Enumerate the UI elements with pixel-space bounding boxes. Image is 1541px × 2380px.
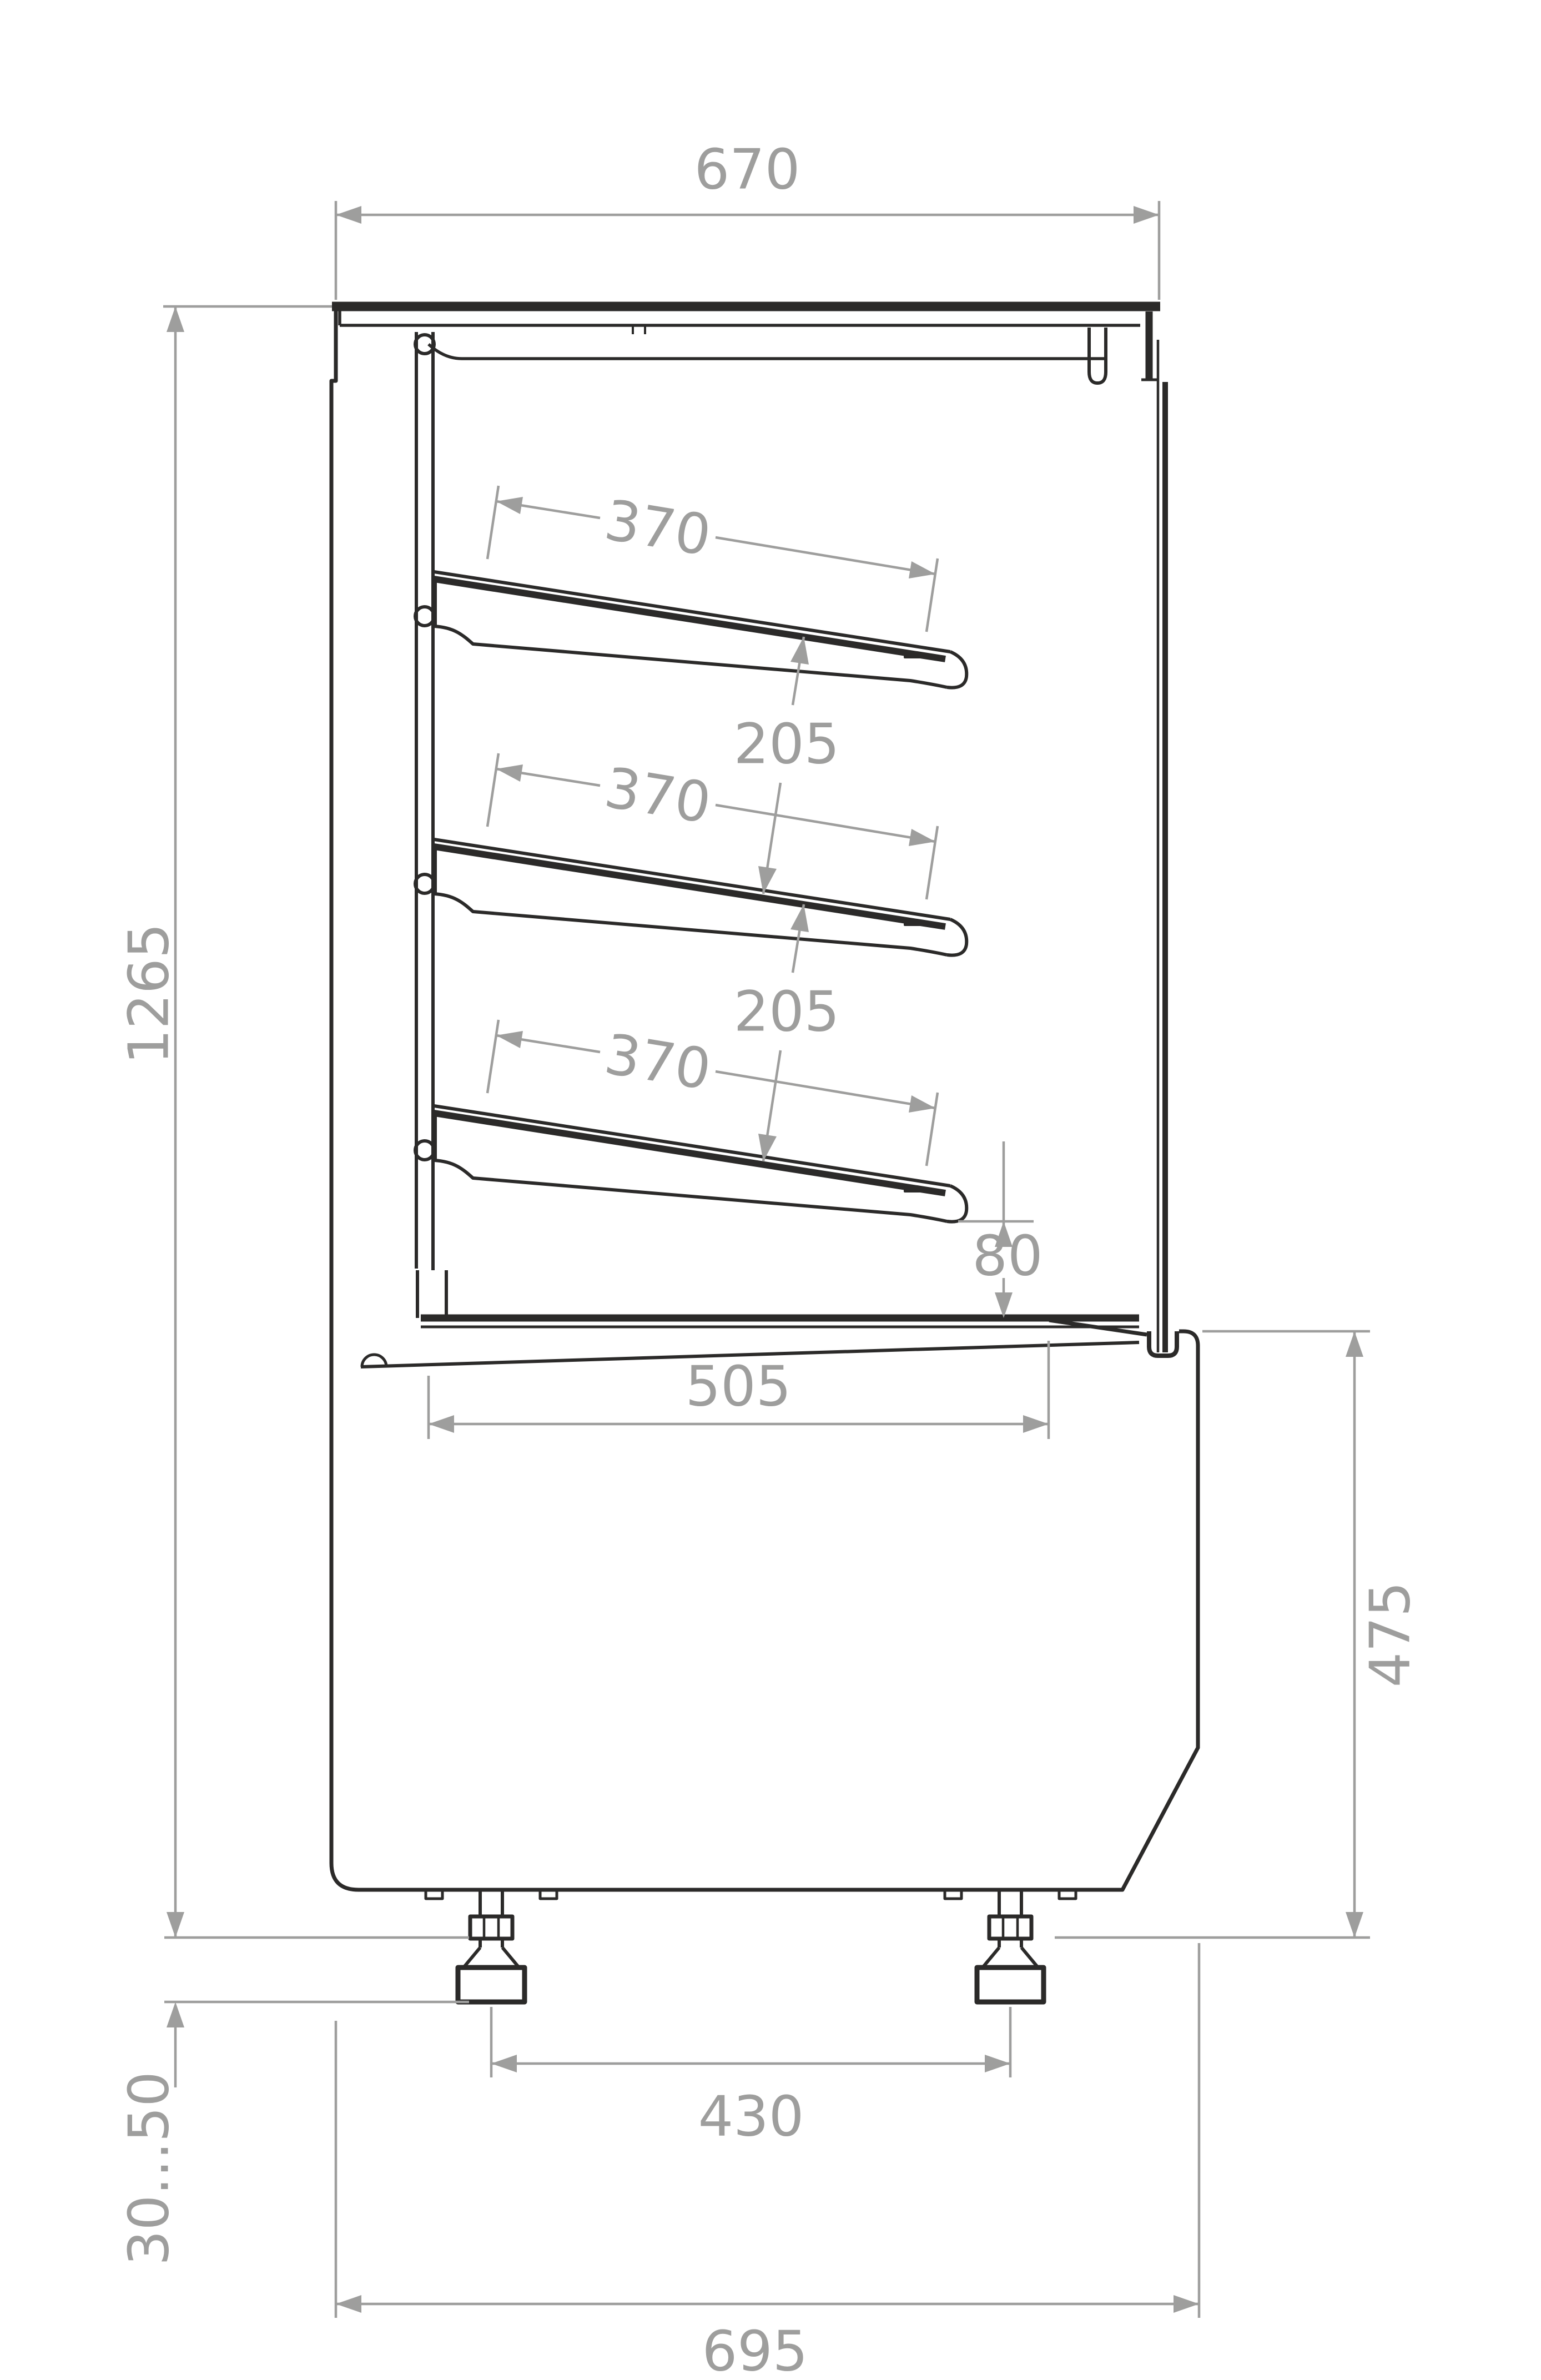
dim-feet-adjust: 30...50 — [117, 2002, 185, 2266]
dim-label-base-height: 475 — [1358, 1582, 1423, 1688]
mount-hole — [415, 335, 434, 354]
dim-shelf-depth-2: 370 — [487, 753, 938, 899]
front-glass — [1149, 340, 1177, 1356]
dim-label-overall-height: 1265 — [117, 923, 182, 1065]
display-case-section-drawing: 670 370 370 370 205 205 80 — [0, 0, 1541, 2380]
dim-shelf-depth-1: 370 — [487, 486, 938, 632]
dim-label-shelf-gap: 205 — [734, 979, 840, 1044]
adjustable-foot-left — [426, 1890, 557, 2002]
shelf — [415, 572, 966, 688]
dim-feet-spacing: 430 — [491, 2007, 1010, 2149]
dim-top-width: 670 — [336, 137, 1159, 300]
dim-label-top-width: 670 — [694, 137, 800, 202]
dim-shelf-gap-2: 205 — [734, 904, 840, 1161]
mount-hole — [415, 1141, 434, 1160]
canopy — [332, 306, 1160, 383]
dim-label-feet-adjust: 30...50 — [117, 2071, 182, 2266]
shelf — [415, 839, 966, 955]
dim-front-gap: 80 — [958, 1141, 1043, 1318]
body-outline — [331, 302, 1198, 1890]
mount-hole — [415, 874, 434, 893]
dim-label-shelf-gap: 205 — [734, 712, 840, 777]
dim-base-depth: 695 — [336, 1943, 1199, 2380]
back-wall — [415, 332, 446, 1318]
dim-shelf-depth-3: 370 — [487, 1020, 938, 1166]
technical-drawing-page: 670 370 370 370 205 205 80 — [0, 0, 1541, 2380]
dim-base-height: 475 — [1055, 1331, 1423, 1938]
dim-deck-depth: 505 — [429, 1341, 1049, 1439]
foot-plate — [458, 1968, 525, 2002]
dim-shelf-gap-1: 205 — [734, 637, 840, 894]
dim-label-shelf-depth: 370 — [600, 755, 715, 836]
mount-hole — [415, 607, 434, 626]
dim-label-shelf-depth: 370 — [600, 487, 715, 568]
foot-plate — [977, 1968, 1044, 2002]
shelf — [415, 1106, 966, 1222]
adjustable-foot-right — [945, 1890, 1076, 2002]
dim-label-shelf-depth: 370 — [600, 1022, 715, 1103]
lamp-bracket — [1089, 328, 1106, 383]
dim-label-base-depth: 695 — [702, 2319, 808, 2380]
dim-label-deck-depth: 505 — [686, 1354, 792, 1419]
dim-label-front-gap: 80 — [972, 1224, 1043, 1289]
dim-label-feet-spacing: 430 — [698, 2084, 804, 2149]
